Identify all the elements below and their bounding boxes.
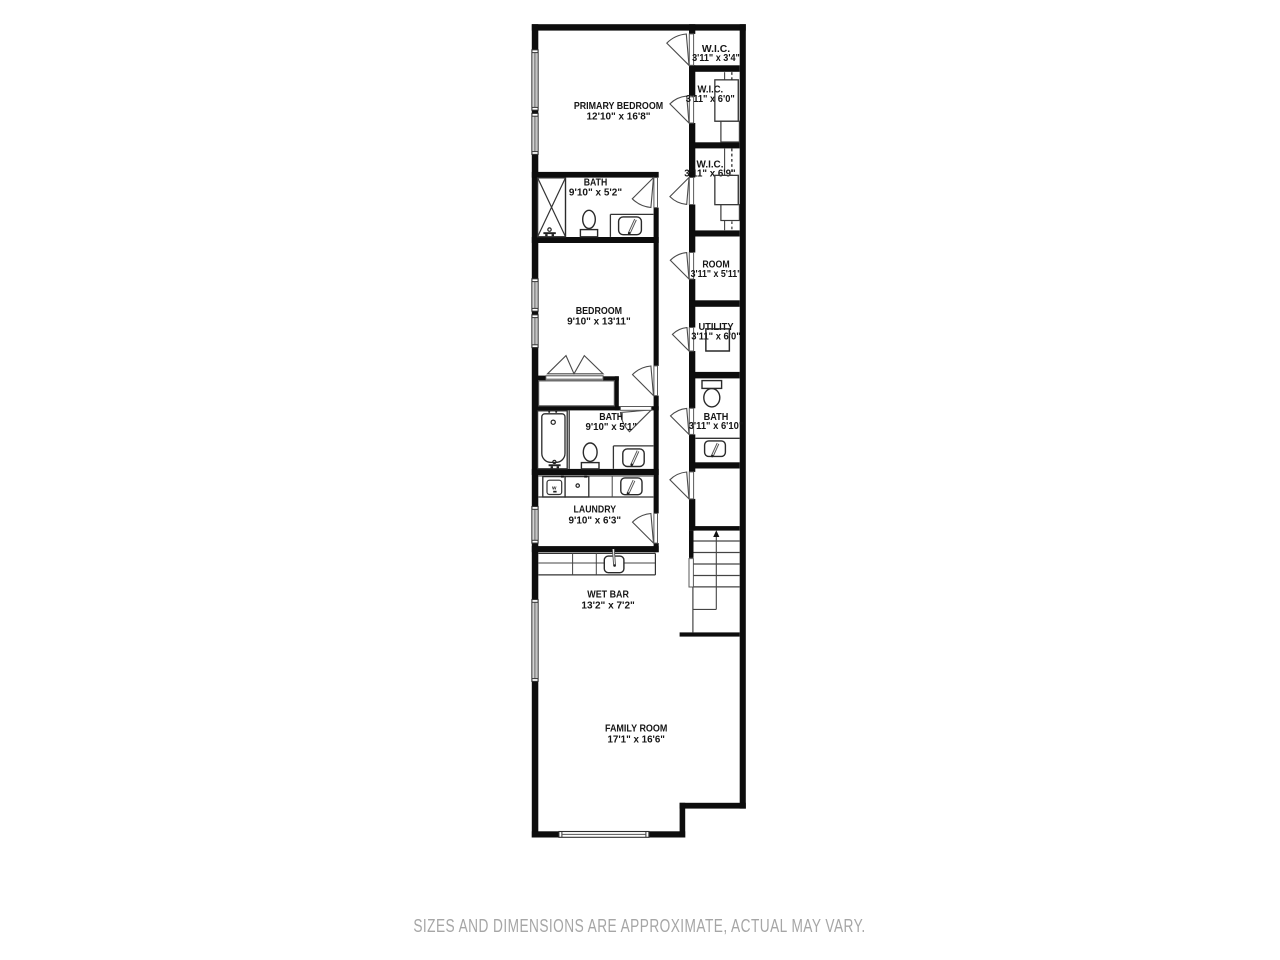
svg-text:17'1" x 16'6": 17'1" x 16'6" — [607, 735, 665, 746]
svg-text:3'11" x 6'9": 3'11" x 6'9" — [684, 169, 736, 180]
svg-text:9'10" x 6'3": 9'10" x 6'3" — [569, 515, 622, 526]
svg-text:9'10" x 5'2": 9'10" x 5'2" — [569, 187, 623, 198]
svg-text:SIZES AND DIMENSIONS ARE APPRO: SIZES AND DIMENSIONS ARE APPROXIMATE, AC… — [413, 916, 865, 936]
svg-text:3'11" x 6'10": 3'11" x 6'10" — [689, 421, 744, 432]
svg-text:13'2" x 7'2": 13'2" x 7'2" — [581, 600, 635, 611]
svg-text:3'11" x 6'0": 3'11" x 6'0" — [691, 331, 741, 342]
svg-text:FAMILY ROOM: FAMILY ROOM — [605, 723, 668, 734]
svg-text:BEDROOM: BEDROOM — [576, 306, 622, 317]
svg-text:9'10" x 13'11": 9'10" x 13'11" — [567, 316, 631, 327]
svg-text:WET BAR: WET BAR — [587, 590, 629, 601]
svg-text:PRIMARY BEDROOM: PRIMARY BEDROOM — [574, 101, 663, 112]
svg-text:w: w — [551, 485, 557, 491]
svg-text:3'11" x 5'11": 3'11" x 5'11" — [691, 269, 742, 280]
svg-text:LAUNDRY: LAUNDRY — [574, 504, 617, 515]
svg-text:3'11" x 6'0": 3'11" x 6'0" — [686, 94, 735, 105]
svg-text:3'11" x 3'4": 3'11" x 3'4" — [692, 53, 740, 64]
svg-text:12'10" x 16'8": 12'10" x 16'8" — [587, 111, 651, 122]
svg-text:9'10" x 5'1": 9'10" x 5'1" — [585, 422, 637, 433]
